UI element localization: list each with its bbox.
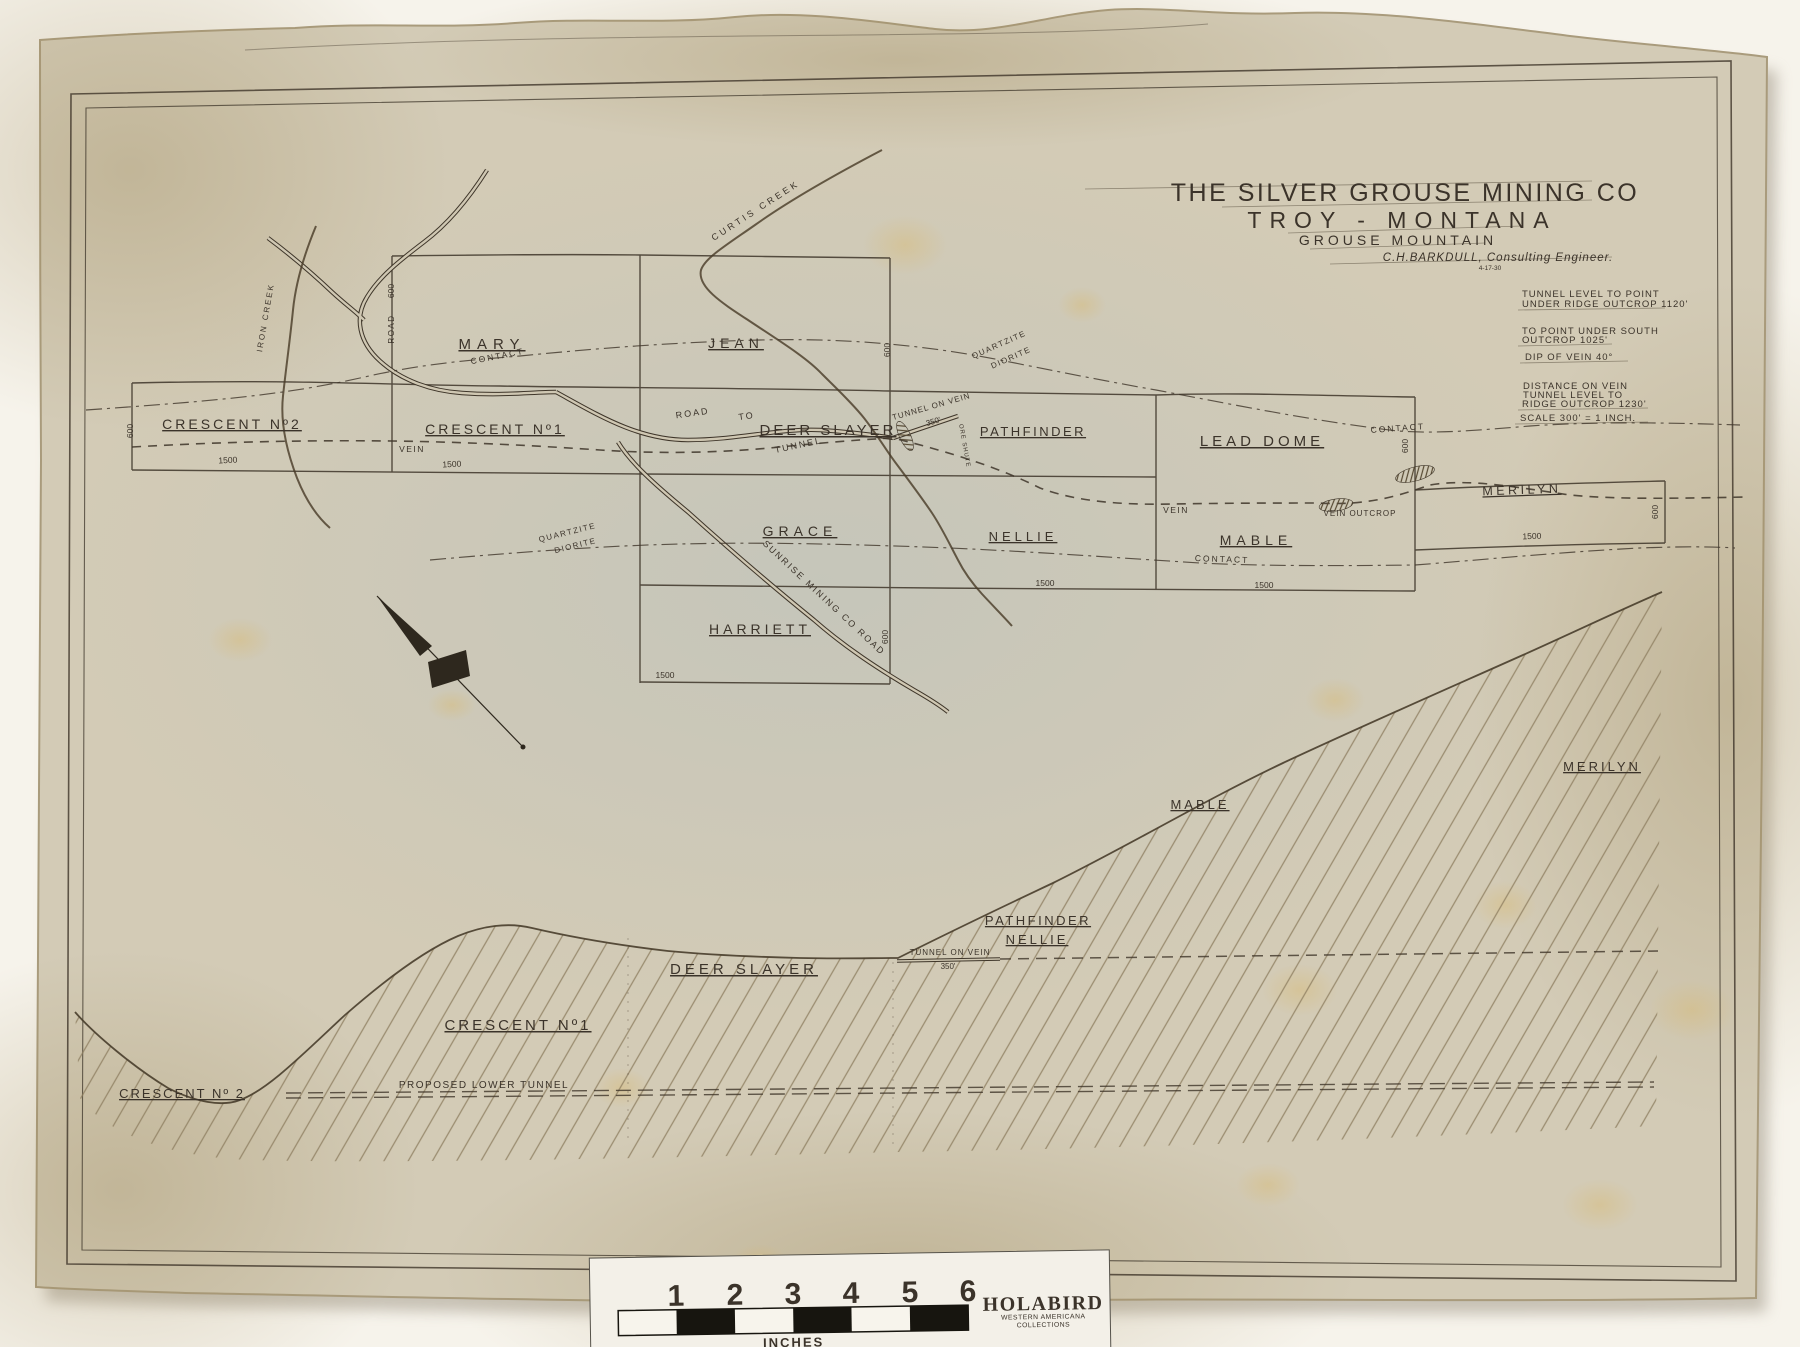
section-label-proposed-tunnel: PROPOSED LOWER TUNNEL: [399, 1080, 569, 1091]
section-label-merilyn: MERILYN: [1563, 759, 1641, 774]
scale-bar-black-1: [676, 1309, 735, 1335]
dim-1500-c: 1500: [656, 670, 675, 680]
label-claim-grace: GRACE: [763, 523, 838, 539]
title-date: 4-17-30: [1479, 265, 1502, 272]
scale-number-3: 3: [784, 1278, 801, 1311]
label-claim-lead-dome: LEAD DOME: [1200, 433, 1324, 450]
brand-sub2: COLLECTIONS: [1017, 1322, 1071, 1330]
dim-600-d: 600: [1400, 439, 1410, 453]
label-vein-2: VEIN: [1163, 505, 1189, 515]
scale-bar: [618, 1305, 968, 1335]
section-label-deer-slayer: DEER SLAYER: [670, 961, 818, 978]
label-claim-mable-plan: MABLE: [1220, 532, 1292, 548]
scale-number-6: 6: [959, 1275, 976, 1308]
dim-600-f: 600: [1650, 505, 1660, 519]
section-label-crescent2: CRESCENT Nº 2: [119, 1086, 245, 1101]
section-label-mable: MABLE: [1170, 797, 1229, 812]
label-road-vertical: ROAD: [387, 314, 396, 343]
label-claim-crescent2: CRESCENT Nº2: [162, 416, 302, 432]
label-vein-1: VEIN: [399, 444, 425, 454]
section-label-tunnel-on-vein: TUNNEL ON VEIN: [910, 948, 991, 957]
scale-bar-black-3: [910, 1305, 969, 1331]
section-label-crescent1: CRESCENT Nº1: [444, 1017, 591, 1034]
dim-600-a: 600: [125, 424, 135, 438]
label-claim-crescent1: CRESCENT Nº1: [425, 421, 565, 437]
scale-bar-black-2: [793, 1307, 852, 1333]
label-claim-pathfinder: PATHFINDER: [980, 424, 1086, 439]
title-engineer: C.H.BARKDULL, Consulting Engineer.: [1383, 252, 1613, 264]
label-vein-outcrop: VEIN OUTCROP: [1324, 509, 1397, 518]
title-line2: TROY - MONTANA: [1247, 207, 1556, 233]
brand-sub1: WESTERN AMERICANA: [1001, 1313, 1086, 1321]
dim-1500-e: 1500: [1255, 580, 1274, 590]
label-claim-harriett: HARRIETT: [709, 621, 811, 637]
label-contact-3: CONTACT: [1195, 553, 1250, 565]
scale-card: 1 2 3 4 5 6 INCHES HOLABIRD WESTERN AMER…: [589, 1250, 1111, 1347]
section-label-nellie: NELLIE: [1006, 932, 1069, 947]
scale-number-1: 1: [667, 1280, 684, 1313]
label-claim-deer-slayer: DEER SLAYER: [760, 422, 897, 439]
label-claim-nellie-plan: NELLIE: [989, 529, 1058, 544]
scale-units: INCHES: [763, 1334, 824, 1347]
scanned-map-photo: MARY JEAN CRESCENT Nº2 CRESCENT Nº1 DEER…: [0, 0, 1800, 1347]
scale-number-5: 5: [901, 1276, 918, 1309]
dim-600-c: 600: [882, 343, 892, 357]
label-claim-jean: JEAN: [708, 335, 764, 351]
label-claim-merilyn-plan: MERILYN: [1482, 482, 1562, 499]
dim-600-e: 600: [880, 630, 890, 644]
north-arrow-dot: [521, 745, 526, 750]
dim-1500-b: 1500: [442, 459, 462, 470]
title-line1: THE SILVER GROUSE MINING CO: [1171, 179, 1639, 207]
map-svg: MARY JEAN CRESCENT Nº2 CRESCENT Nº1 DEER…: [0, 0, 1800, 1347]
dim-1500-a: 1500: [218, 455, 238, 466]
dim-1500-f: 1500: [1522, 531, 1542, 542]
dim-600-b: 600: [386, 284, 396, 298]
section-label-350: 350': [941, 962, 956, 971]
scale-number-2: 2: [726, 1279, 743, 1312]
brand-name: HOLABIRD: [982, 1292, 1103, 1316]
title-line3: GROUSE MOUNTAIN: [1299, 232, 1497, 248]
dim-1500-d: 1500: [1036, 578, 1055, 588]
scale-number-4: 4: [842, 1277, 860, 1310]
section-label-pathfinder: PATHFINDER: [985, 913, 1091, 928]
